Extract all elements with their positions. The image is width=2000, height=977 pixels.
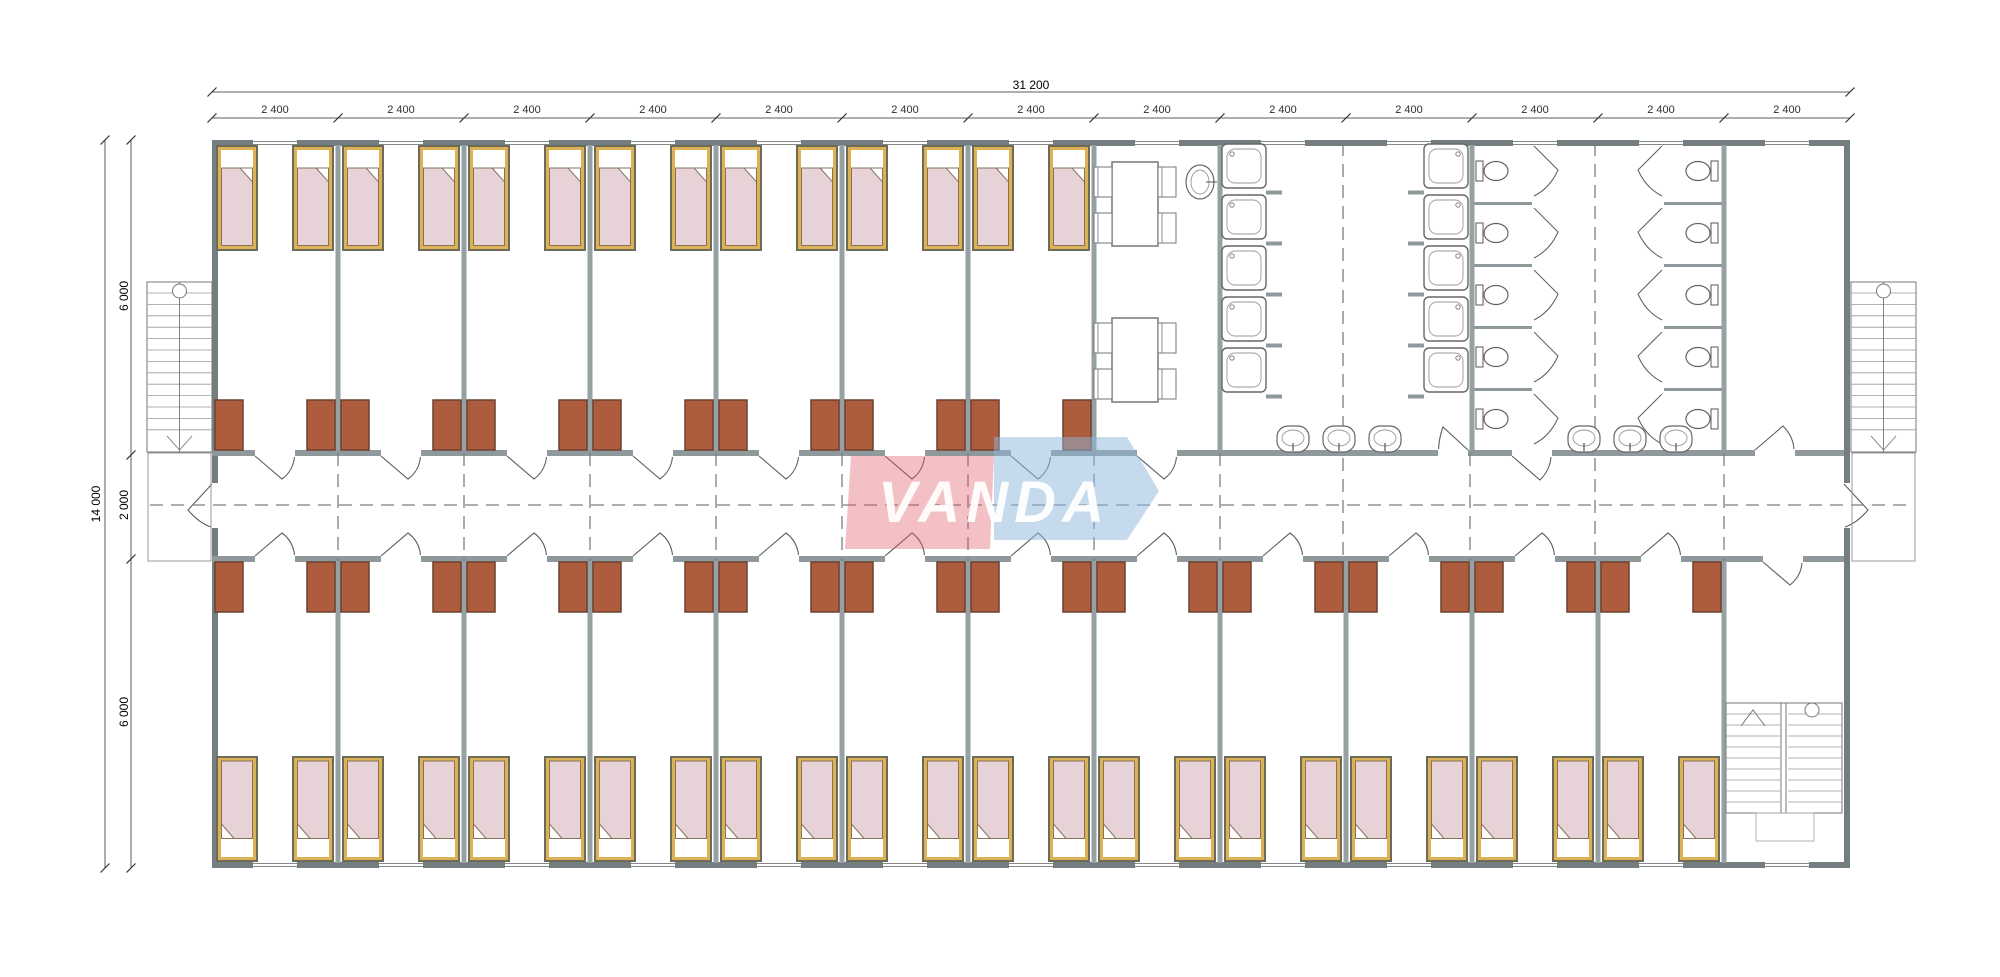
bed-mattress <box>676 168 707 246</box>
desk-cabinet <box>341 562 369 612</box>
window-bottom <box>757 862 801 868</box>
window-bottom <box>505 862 549 868</box>
dimension-module-label: 2 400 <box>513 104 541 116</box>
toilet-stall-partition <box>1664 326 1722 329</box>
bed-mattress <box>474 761 505 839</box>
door-opening <box>255 450 295 456</box>
toilet-tank <box>1476 161 1483 181</box>
dimension-band-bottom: 6 000 <box>117 697 131 727</box>
window-top <box>1387 140 1431 146</box>
bed-mattress <box>1306 761 1337 839</box>
partition-wall <box>714 145 719 450</box>
toilet-stall-partition <box>1474 388 1532 391</box>
shower-divider <box>1266 191 1282 195</box>
toilet-stall-door <box>1534 146 1558 196</box>
door-opening <box>1763 556 1803 562</box>
toilet-stall-door <box>1638 332 1662 382</box>
bed-mattress <box>978 761 1009 839</box>
dimension-band-top: 6 000 <box>117 281 131 311</box>
dining-table <box>1112 318 1158 402</box>
window-top <box>631 140 675 146</box>
toilet-stall-door <box>1534 270 1558 320</box>
stair-start-marker <box>1805 703 1819 717</box>
door-opening <box>1512 450 1552 456</box>
door-leaf <box>507 456 547 479</box>
desk-cabinet <box>1097 562 1125 612</box>
partition-wall <box>1344 561 1349 863</box>
desk-cabinet <box>433 400 461 450</box>
toilet-bowl <box>1484 348 1508 367</box>
door-opening <box>633 450 673 456</box>
toilet-tank <box>1711 347 1718 367</box>
desk-cabinet <box>719 400 747 450</box>
partition-wall <box>1596 561 1601 863</box>
desk-cabinet <box>433 562 461 612</box>
desk-cabinet <box>937 562 965 612</box>
window-bottom <box>379 862 423 868</box>
desk-cabinet <box>937 400 965 450</box>
shower-stall <box>1424 144 1468 188</box>
door-leaf <box>1512 456 1551 480</box>
door-opening <box>507 556 547 562</box>
door-leaf <box>1763 562 1802 585</box>
toilet-bowl <box>1686 286 1710 305</box>
bed-mattress <box>726 761 757 839</box>
door-leaf <box>255 533 295 556</box>
desk-cabinet <box>1567 562 1595 612</box>
floor-plan-drawing: 2 4002 4002 4002 4002 4002 4002 4002 400… <box>0 0 2000 977</box>
shower-stall <box>1424 348 1468 392</box>
desk-cabinet <box>341 400 369 450</box>
desk-cabinet <box>1475 562 1503 612</box>
desk-cabinet <box>1223 562 1251 612</box>
window-top <box>1261 140 1305 146</box>
shower-divider <box>1266 293 1282 297</box>
bed-mattress <box>424 168 455 246</box>
desk-cabinet <box>685 400 713 450</box>
desk-cabinet <box>1441 562 1469 612</box>
partition-wall <box>966 145 971 450</box>
toilet-bowl <box>1686 224 1710 243</box>
bed-mattress <box>802 761 833 839</box>
window-top <box>1009 140 1053 146</box>
floor-plan-canvas: 2 4002 4002 4002 4002 4002 4002 4002 400… <box>0 0 2000 977</box>
door-opening <box>1389 556 1429 562</box>
shower-divider <box>1266 395 1282 399</box>
shower-divider <box>1408 242 1424 246</box>
toilet-tank <box>1711 285 1718 305</box>
door-opening <box>1011 556 1051 562</box>
dimension-module-label: 2 400 <box>1773 104 1801 116</box>
door-opening <box>885 556 925 562</box>
shower-stall <box>1222 144 1266 188</box>
desk-cabinet <box>467 562 495 612</box>
desk-cabinet <box>811 562 839 612</box>
shower-divider <box>1408 395 1424 399</box>
shower-divider <box>1408 191 1424 195</box>
bed-mattress <box>1432 761 1463 839</box>
partition-wall <box>462 145 467 450</box>
partition-wall <box>1470 145 1475 450</box>
desk-cabinet <box>845 400 873 450</box>
door-leaf <box>633 533 673 556</box>
door-leaf <box>1755 426 1794 450</box>
desk-cabinet <box>559 562 587 612</box>
bed-mattress <box>348 761 379 839</box>
partition-wall <box>1218 145 1223 450</box>
door-leaf <box>1641 533 1681 556</box>
door-opening <box>1755 450 1795 456</box>
desk-cabinet <box>1349 562 1377 612</box>
door-opening <box>381 450 421 456</box>
toilet-stall-partition <box>1664 264 1722 267</box>
bed-mattress <box>978 168 1009 246</box>
partition-wall <box>1092 561 1097 863</box>
partition-wall <box>1470 561 1475 863</box>
bed-mattress <box>298 761 329 839</box>
chair <box>1158 369 1176 399</box>
shower-stall <box>1424 246 1468 290</box>
entrance-landing <box>148 453 211 561</box>
toilet-tank <box>1476 223 1483 243</box>
chair <box>1094 323 1112 353</box>
door-opening <box>633 556 673 562</box>
partition-wall <box>588 145 593 450</box>
window-bottom <box>1765 862 1809 868</box>
toilet-stall-door <box>1534 208 1558 258</box>
chair <box>1094 167 1112 197</box>
bed-mattress <box>726 168 757 246</box>
desk-cabinet <box>593 400 621 450</box>
shower-stall <box>1424 297 1468 341</box>
shower-stall <box>1222 348 1266 392</box>
toilet-tank <box>1476 347 1483 367</box>
dimension-module-label: 2 400 <box>1521 104 1549 116</box>
partition-wall <box>336 561 341 863</box>
bed-mattress <box>802 168 833 246</box>
bed-mattress <box>550 168 581 246</box>
door-leaf <box>759 533 799 556</box>
door-leaf <box>255 456 295 479</box>
stair-start-marker <box>1877 284 1891 298</box>
door-opening <box>1137 450 1177 456</box>
window-top <box>1639 140 1683 146</box>
bed-mattress <box>222 761 253 839</box>
partition-wall <box>336 145 341 450</box>
partition-wall <box>966 561 971 863</box>
bed-mattress <box>928 761 959 839</box>
toilet-bowl <box>1484 410 1508 429</box>
bed-mattress <box>1230 761 1261 839</box>
dimension-module-label: 2 400 <box>1017 104 1045 116</box>
dimension-module-label: 2 400 <box>261 104 289 116</box>
toilet-tank <box>1476 285 1483 305</box>
bed-mattress <box>676 761 707 839</box>
shower-divider <box>1266 242 1282 246</box>
desk-cabinet <box>1189 562 1217 612</box>
dimension-module-label: 2 400 <box>387 104 415 116</box>
bed-mattress <box>550 761 581 839</box>
shower-stall <box>1222 195 1266 239</box>
bed-mattress <box>1356 761 1387 839</box>
dimension-module-label: 2 400 <box>1143 104 1171 116</box>
window-top <box>883 140 927 146</box>
desk-cabinet <box>685 562 713 612</box>
toilet-bowl <box>1484 224 1508 243</box>
desk-cabinet <box>307 400 335 450</box>
chair <box>1094 369 1112 399</box>
door-opening <box>507 450 547 456</box>
bed-mattress <box>852 761 883 839</box>
bed-mattress <box>1482 761 1513 839</box>
bed-mattress <box>474 168 505 246</box>
window-bottom <box>631 862 675 868</box>
window-top <box>253 140 297 146</box>
toilet-tank <box>1711 161 1718 181</box>
partition-wall <box>714 561 719 863</box>
toilet-stall-partition <box>1474 264 1532 267</box>
desk-cabinet <box>559 400 587 450</box>
bed-mattress <box>852 168 883 246</box>
desk-cabinet <box>845 562 873 612</box>
dimension-module-label: 2 400 <box>1395 104 1423 116</box>
partition-wall <box>840 561 845 863</box>
toilet-bowl <box>1686 410 1710 429</box>
door-opening <box>255 556 295 562</box>
desk-cabinet <box>215 562 243 612</box>
door-leaf <box>1389 533 1429 556</box>
window-bottom <box>1639 862 1683 868</box>
partition-wall <box>588 561 593 863</box>
bed-mattress <box>222 168 253 246</box>
window-top <box>757 140 801 146</box>
bed-mattress <box>1684 761 1715 839</box>
door-opening <box>381 556 421 562</box>
toilet-stall-partition <box>1474 326 1532 329</box>
door-opening <box>1515 556 1555 562</box>
dimension-module-label: 2 400 <box>765 104 793 116</box>
door-opening <box>885 450 925 456</box>
chair <box>1158 213 1176 243</box>
door-opening <box>1137 556 1177 562</box>
toilet-tank <box>1711 409 1718 429</box>
window-bottom <box>1135 862 1179 868</box>
bed-mattress <box>1054 761 1085 839</box>
door-leaf <box>1263 533 1303 556</box>
door-leaf <box>1439 427 1469 450</box>
toilet-bowl <box>1484 286 1508 305</box>
shower-divider <box>1408 344 1424 348</box>
toilet-tank <box>1711 223 1718 243</box>
toilet-stall-door <box>1534 332 1558 382</box>
desk-cabinet <box>719 562 747 612</box>
desk-cabinet <box>467 400 495 450</box>
desk-cabinet <box>811 400 839 450</box>
partition-wall <box>462 561 467 863</box>
shower-divider <box>1266 344 1282 348</box>
logo-text: VANDA <box>878 470 1110 535</box>
door-leaf <box>633 456 673 479</box>
dimension-module-label: 2 400 <box>891 104 919 116</box>
shower-divider <box>1408 293 1424 297</box>
partition-wall <box>1218 561 1223 863</box>
bed-mattress <box>298 168 329 246</box>
window-top <box>1513 140 1557 146</box>
chair <box>1158 323 1176 353</box>
toilet-stall-partition <box>1664 388 1722 391</box>
toilet-stall-door <box>1638 146 1662 196</box>
door-opening <box>1438 450 1468 456</box>
window-bottom <box>1009 862 1053 868</box>
bed-mattress <box>1608 761 1639 839</box>
desk-cabinet <box>1601 562 1629 612</box>
dimension-module-label: 2 400 <box>1269 104 1297 116</box>
stair-lower-landing <box>1756 813 1814 841</box>
bed-mattress <box>1054 168 1085 246</box>
dimension-total-height: 14 000 <box>89 485 103 522</box>
bed-mattress <box>1104 761 1135 839</box>
dining-table <box>1112 162 1158 246</box>
shower-stall <box>1222 297 1266 341</box>
window-top <box>379 140 423 146</box>
door-leaf <box>1515 533 1555 556</box>
bed-mattress <box>928 168 959 246</box>
door-leaf <box>381 533 421 556</box>
desk-cabinet <box>1315 562 1343 612</box>
desk-cabinet <box>1693 562 1721 612</box>
shower-stall <box>1424 195 1468 239</box>
toilet-bowl <box>1686 348 1710 367</box>
chair <box>1158 167 1176 197</box>
toilet-stall-partition <box>1664 202 1722 205</box>
chair <box>1094 213 1112 243</box>
entrance-landing <box>1852 453 1915 561</box>
window-bottom <box>1387 862 1431 868</box>
toilet-bowl <box>1686 162 1710 181</box>
door-leaf <box>381 456 421 479</box>
door-opening <box>1641 556 1681 562</box>
shower-stall <box>1222 246 1266 290</box>
door-opening <box>759 450 799 456</box>
window-bottom <box>253 862 297 868</box>
toilet-stall-partition <box>1474 202 1532 205</box>
toilet-stall-door <box>1638 208 1662 258</box>
desk-cabinet <box>593 562 621 612</box>
dimension-total-width: 31 200 <box>1013 78 1050 92</box>
partition-wall <box>840 145 845 450</box>
toilet-stall-door <box>1638 270 1662 320</box>
bed-mattress <box>424 761 455 839</box>
stair-start-marker <box>173 284 187 298</box>
door-leaf <box>759 456 799 479</box>
toilet-stall-door <box>1534 394 1558 444</box>
toilet-tank <box>1476 409 1483 429</box>
window-bottom <box>883 862 927 868</box>
window-bottom <box>1261 862 1305 868</box>
partition-wall <box>1722 145 1727 450</box>
window-top <box>1135 140 1179 146</box>
bed-mattress <box>348 168 379 246</box>
desk-cabinet <box>1063 562 1091 612</box>
window-top <box>1765 140 1809 146</box>
bed-mattress <box>1180 761 1211 839</box>
bed-mattress <box>1558 761 1589 839</box>
desk-cabinet <box>307 562 335 612</box>
door-leaf <box>1137 533 1177 556</box>
toilet-bowl <box>1484 162 1508 181</box>
bed-mattress <box>600 761 631 839</box>
door-opening <box>1263 556 1303 562</box>
dimension-module-label: 2 400 <box>639 104 667 116</box>
window-bottom <box>1513 862 1557 868</box>
desk-cabinet <box>215 400 243 450</box>
window-top <box>505 140 549 146</box>
door-opening <box>759 556 799 562</box>
dimension-module-label: 2 400 <box>1647 104 1675 116</box>
door-leaf <box>507 533 547 556</box>
desk-cabinet <box>971 562 999 612</box>
bed-mattress <box>600 168 631 246</box>
dimension-band-corridor: 2 000 <box>117 490 131 520</box>
